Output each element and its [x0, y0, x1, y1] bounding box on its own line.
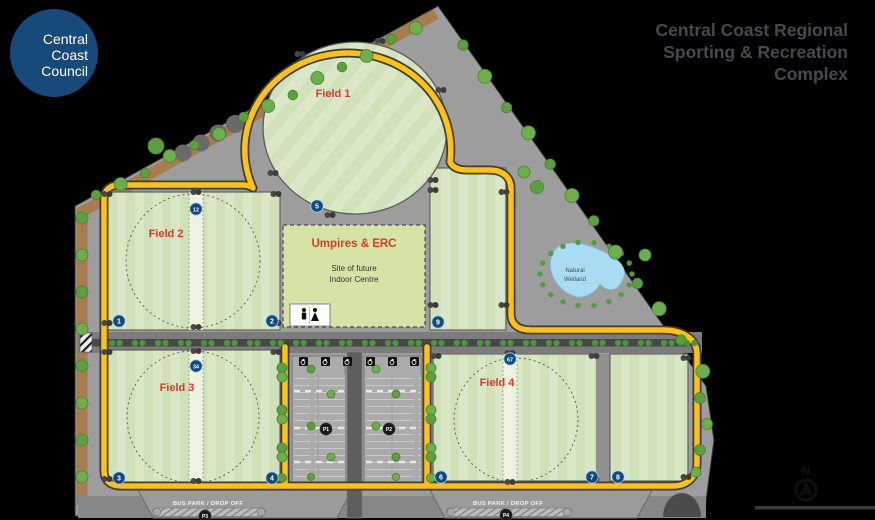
bus-strip-right-end — [563, 508, 571, 516]
tree-icon — [208, 340, 214, 346]
tree-icon — [695, 445, 706, 456]
field-3-label: Field 3 — [160, 382, 195, 394]
tree-icon — [668, 340, 674, 346]
title-line-1: Central Coast Regional — [655, 20, 848, 40]
parking-median — [347, 352, 362, 518]
tree-icon — [426, 372, 436, 382]
tree-icon — [576, 340, 582, 346]
tree-icon — [201, 340, 207, 346]
light-fixture-icon — [504, 189, 510, 195]
tree-icon — [545, 159, 555, 169]
tree-icon — [426, 414, 436, 424]
light-fixture-icon — [594, 353, 600, 359]
field-4-path — [597, 354, 610, 481]
grass-icon — [540, 260, 545, 265]
light-fixture-icon — [380, 38, 386, 44]
tree-icon — [521, 126, 535, 140]
light-fixture-icon — [107, 349, 113, 355]
tree-icon — [684, 340, 690, 346]
tree-icon — [185, 340, 191, 346]
tree-icon — [277, 452, 287, 462]
tree-icon — [695, 393, 706, 404]
tree-icon — [155, 340, 161, 346]
field-marker-label-7: 7 — [590, 474, 594, 481]
field-marker-label-8: 8 — [616, 474, 620, 481]
logo-line-1: Central — [43, 31, 88, 47]
tree-icon — [327, 453, 335, 461]
tree-icon — [307, 473, 314, 480]
tree-icon — [518, 166, 530, 178]
tree-icon — [385, 340, 391, 346]
field-2-label: Field 2 — [149, 228, 184, 240]
tree-icon — [507, 340, 513, 346]
grass-icon — [591, 240, 596, 245]
light-fixture-icon — [107, 320, 113, 326]
tree-icon — [231, 340, 237, 346]
bottom-right-rule — [755, 506, 875, 510]
light-fixture-icon — [686, 474, 692, 480]
tree-icon — [392, 340, 398, 346]
tree-icon — [76, 286, 88, 298]
tree-icon — [109, 340, 115, 346]
vertical-field — [430, 168, 506, 330]
grass-icon — [629, 271, 634, 276]
tree-icon — [337, 62, 347, 72]
tree-icon — [307, 422, 315, 430]
wetland-label-2: Wetland — [564, 277, 586, 283]
tree-icon — [114, 178, 127, 191]
light-fixture-icon — [441, 87, 447, 93]
grass-icon — [540, 282, 545, 287]
light-fixture-icon — [433, 302, 439, 308]
field-4-east — [610, 354, 688, 481]
site-map-canvas: 121234345967867P1P2P3P4 Field 1 Field 2 … — [0, 0, 875, 520]
tree-icon — [190, 140, 200, 150]
tree-icon — [148, 138, 164, 154]
field-marker-label-12: 12 — [193, 207, 199, 213]
parking-marker-label-P4: P4 — [503, 513, 509, 519]
parking-marker-label-P3: P3 — [202, 514, 208, 520]
toilet-icon — [290, 304, 330, 326]
tree-icon — [254, 340, 260, 346]
north-arrow-icon: N — [796, 464, 816, 500]
tree-icon — [277, 340, 283, 346]
tree-icon — [270, 340, 276, 346]
tree-icon — [300, 340, 306, 346]
light-fixture-icon — [300, 51, 306, 57]
tree-icon — [523, 340, 529, 346]
wetland-label-1: Natural — [565, 268, 584, 274]
tree-icon — [691, 340, 697, 346]
bus-park-label-right: BUS PARK / DROP OFF — [473, 501, 543, 507]
bus-strip-left-end — [153, 508, 161, 516]
light-fixture-icon — [436, 353, 442, 359]
tree-icon — [500, 340, 506, 346]
tree-icon — [569, 340, 575, 346]
light-fixture-icon — [510, 479, 516, 485]
field-marker-label-1: 1 — [117, 318, 121, 325]
tree-icon — [426, 443, 436, 453]
tree-icon — [311, 72, 324, 85]
grass-icon — [575, 240, 580, 245]
tree-icon — [224, 340, 230, 346]
tree-icon — [501, 102, 511, 112]
light-fixture-icon — [276, 349, 282, 355]
tree-icon — [645, 340, 651, 346]
site-map-page: 121234345967867P1P2P3P4 Field 1 Field 2 … — [0, 0, 875, 520]
tree-icon — [372, 365, 380, 373]
tree-icon — [565, 189, 579, 203]
tree-icon — [426, 452, 436, 462]
tree-icon — [162, 340, 168, 346]
tree-icon — [431, 340, 437, 346]
grass-icon — [575, 303, 580, 308]
tree-icon — [277, 372, 287, 382]
light-fixture-icon — [107, 191, 113, 197]
tree-icon — [696, 364, 710, 378]
tree-icon — [426, 405, 436, 415]
tree-icon — [652, 302, 666, 316]
grass-icon — [548, 292, 553, 297]
tree-icon — [702, 419, 713, 430]
light-fixture-icon — [196, 478, 202, 484]
field-marker-label-2: 2 — [270, 318, 274, 325]
field-marker-label-4: 4 — [270, 475, 274, 482]
council-logo: Central Coast Council — [10, 9, 98, 97]
tree-icon — [408, 340, 414, 346]
tree-icon — [484, 340, 490, 346]
grass-icon — [627, 260, 632, 265]
tree-icon — [599, 340, 605, 346]
building-subtitle-2: Indoor Centre — [330, 275, 379, 284]
grass-icon — [606, 299, 611, 304]
field-1-label: Field 1 — [316, 88, 351, 100]
tree-icon — [76, 323, 88, 335]
tree-icon — [615, 340, 621, 346]
tree-icon — [589, 216, 599, 226]
tree-icon — [327, 390, 335, 398]
tree-icon — [409, 22, 422, 35]
light-fixture-icon — [330, 212, 336, 218]
tree-icon — [278, 474, 287, 483]
tree-icon — [139, 340, 145, 346]
grass-icon — [560, 244, 565, 249]
light-fixture-icon — [196, 324, 202, 330]
tree-icon — [76, 212, 88, 224]
building-title: Umpires & ERC — [312, 238, 397, 250]
light-fixture-icon — [433, 187, 439, 193]
tree-icon — [632, 278, 642, 288]
tree-icon — [609, 245, 623, 259]
tree-icon — [346, 340, 352, 346]
grass-icon — [537, 271, 542, 276]
bus-strip-right-end — [447, 508, 455, 516]
tree-icon — [392, 473, 399, 480]
map-title: Central Coast Regional Sporting & Recrea… — [655, 20, 848, 84]
light-fixture-icon — [196, 189, 202, 195]
tree-icon — [178, 340, 184, 346]
tree-icon — [293, 340, 299, 346]
field-marker-label-5: 5 — [315, 203, 319, 210]
building-subtitle-1: Site of future — [331, 264, 377, 273]
west-crossing — [80, 333, 92, 352]
tree-icon — [323, 340, 329, 346]
tree-icon — [91, 190, 101, 200]
tree-icon — [461, 340, 467, 346]
parking-marker-label-P2: P2 — [386, 427, 392, 433]
tree-icon — [415, 340, 421, 346]
grass-icon — [560, 299, 565, 304]
tree-icon — [277, 405, 287, 415]
tree-icon — [386, 34, 396, 44]
tree-icon — [277, 363, 287, 373]
tree-icon — [530, 340, 536, 346]
tree-icon — [76, 249, 88, 261]
tree-icon — [132, 340, 138, 346]
tree-icon — [307, 365, 315, 373]
tree-icon — [76, 434, 88, 446]
tree-icon — [477, 340, 483, 346]
grass-icon — [619, 292, 624, 297]
field-marker-label-9: 9 — [436, 319, 440, 326]
tree-icon — [239, 112, 249, 122]
tree-icon — [247, 340, 253, 346]
tree-icon — [553, 340, 559, 346]
tree-icon — [546, 340, 552, 346]
tree-icon — [454, 340, 460, 346]
bus-park-label-left: BUS PARK / DROP OFF — [173, 501, 243, 507]
grass-icon — [548, 251, 553, 256]
light-fixture-icon — [276, 191, 282, 197]
tree-icon — [288, 90, 298, 100]
tree-icon — [116, 340, 122, 346]
tree-icon — [369, 340, 375, 346]
tree-icon — [392, 390, 400, 398]
tree-icon — [438, 340, 444, 346]
field-4-strip — [503, 354, 517, 481]
bus-strip-left-end — [257, 508, 265, 516]
light-fixture-icon — [504, 302, 510, 308]
tree-icon — [163, 150, 176, 163]
tree-icon — [76, 397, 88, 409]
light-fixture-icon — [107, 476, 113, 482]
tree-icon — [76, 360, 88, 372]
field-marker-label-6: 6 — [439, 474, 443, 481]
tree-icon — [213, 128, 226, 141]
logo-line-2: Coast — [51, 47, 88, 63]
light-fixture-icon — [273, 170, 279, 176]
tree-icon — [362, 340, 368, 346]
tree-icon — [661, 340, 667, 346]
tree-icon — [76, 471, 88, 483]
tree-icon — [277, 414, 287, 424]
tree-icon — [639, 249, 651, 261]
tree-icon — [339, 340, 345, 346]
tree-icon — [592, 340, 598, 346]
field-marker-label-34: 34 — [193, 364, 199, 370]
tree-icon — [316, 340, 322, 346]
field-marker-label-67: 67 — [507, 357, 513, 363]
logo-line-3: Council — [41, 63, 88, 79]
light-fixture-icon — [196, 348, 202, 354]
tree-icon — [140, 168, 150, 178]
tree-icon — [691, 467, 701, 477]
tree-icon — [427, 474, 436, 483]
tree-icon — [360, 50, 373, 63]
tree-icon — [458, 40, 468, 50]
title-line-3: Complex — [774, 64, 848, 84]
tree-icon — [638, 340, 644, 346]
tree-icon — [531, 181, 544, 194]
tree-icon — [262, 100, 275, 113]
title-line-2: Sporting & Recreation — [663, 42, 848, 62]
tree-icon — [478, 69, 492, 83]
field-4-label: Field 4 — [480, 377, 516, 389]
light-fixture-icon — [686, 355, 692, 361]
tree-icon — [622, 340, 628, 346]
grass-icon — [591, 303, 596, 308]
north-label: N — [802, 464, 811, 478]
tree-icon — [392, 453, 400, 461]
grass-icon — [627, 282, 632, 287]
parking-marker-label-P1: P1 — [323, 427, 329, 433]
tree-icon — [277, 443, 287, 453]
tree-icon — [372, 422, 380, 430]
field-marker-label-3: 3 — [117, 475, 121, 482]
tree-icon — [426, 363, 436, 373]
light-fixture-icon — [433, 177, 439, 183]
